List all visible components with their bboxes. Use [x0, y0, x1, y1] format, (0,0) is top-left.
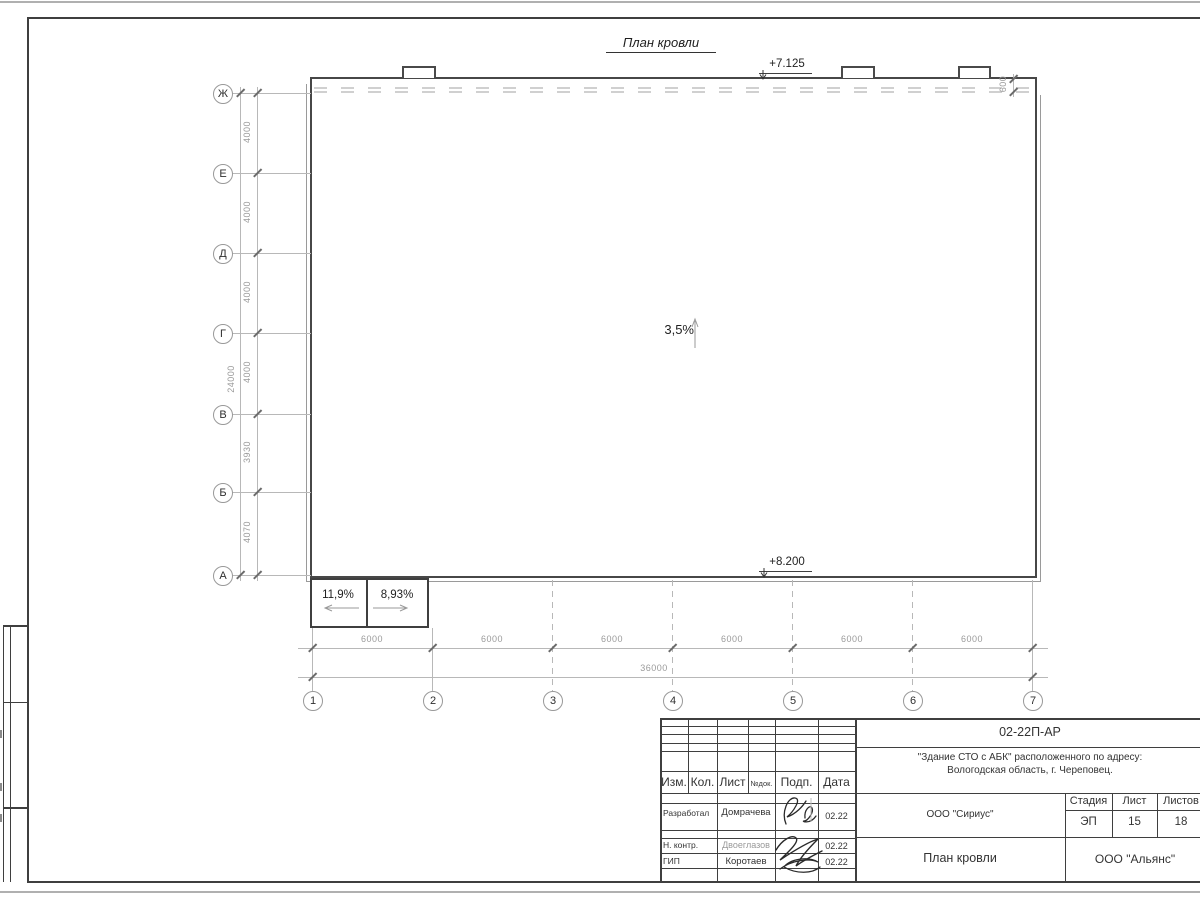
axis-bubble-col: 7: [1023, 691, 1043, 711]
titleblock-header-podp: Подп.: [775, 775, 818, 789]
dim-label: 6000: [702, 634, 762, 644]
binding-stamp-text-fragment: [0, 814, 2, 822]
axis-line-dashed: [912, 580, 913, 691]
parapet-dashed-line: [314, 87, 1034, 89]
frame-top: [27, 17, 1200, 19]
frame-left: [27, 17, 29, 883]
titleblock-line: [660, 718, 1200, 720]
axis-line: [231, 253, 311, 254]
titleblock-total-value: 18: [1157, 816, 1200, 828]
axis-bubble-row: Е: [213, 164, 233, 184]
binding-stamp-line: [3, 625, 4, 882]
axis-bubble-row: В: [213, 405, 233, 425]
axis-line: [231, 492, 311, 493]
titleblock-sheet-label: Лист: [1112, 795, 1157, 807]
roof-vent-shaft: [958, 66, 991, 78]
titleblock-line: [660, 743, 855, 744]
axis-line: [432, 628, 433, 691]
dimension-line-left-total: [240, 87, 241, 581]
axis-line: [231, 575, 311, 576]
ramp-slope-left: 11,9%: [312, 589, 364, 601]
ramp-box: [310, 578, 429, 628]
parapet-outer-line: [1040, 95, 1041, 581]
titleblock-project-line1: "Здание СТО с АБК" расположенного по адр…: [860, 752, 1200, 763]
titleblock-line: [1065, 810, 1200, 811]
titleblock-total-label: Листов: [1157, 795, 1200, 807]
dim-total-label: 24000: [226, 357, 236, 401]
frame-bottom: [27, 881, 1200, 883]
dim-label: 6000: [942, 634, 1002, 644]
titleblock-line: [660, 771, 855, 772]
drawing-title: План кровли: [606, 35, 716, 53]
signature-scribble: [772, 832, 826, 880]
axis-bubble-col: 2: [423, 691, 443, 711]
titleblock-line: [660, 830, 855, 831]
titleblock-name: Коротаев: [717, 856, 775, 867]
dim-label: 4000: [242, 190, 252, 234]
titleblock-name: Двоеглазов: [717, 840, 775, 850]
elevation-arrow-icon: [757, 70, 769, 80]
dim-label: 6000: [462, 634, 522, 644]
axis-bubble-col: 4: [663, 691, 683, 711]
titleblock-name: Домрачева: [717, 807, 775, 818]
axis-line: [231, 414, 311, 415]
axis-line-dashed: [672, 580, 673, 691]
roof-vent-shaft: [402, 66, 436, 78]
titleblock-line: [660, 718, 662, 883]
titleblock-date: 02.22: [818, 811, 855, 821]
slope-label: 3,5%: [648, 322, 694, 337]
binding-stamp-line: [3, 702, 27, 703]
titleblock-line: [660, 734, 855, 735]
parapet-dashed-line: [314, 91, 1034, 93]
dim-label: 4000: [242, 110, 252, 154]
ramp-arrow-left-icon: [322, 604, 360, 612]
axis-bubble-row: Д: [213, 244, 233, 264]
titleblock-stage-label: Стадия: [1065, 795, 1112, 807]
dim-label: 4000: [242, 270, 252, 314]
signature-scribble: [778, 792, 820, 832]
titleblock-doc-number: 02-22П-АР: [855, 725, 1200, 739]
ramp-arrow-right-icon: [372, 604, 410, 612]
axis-bubble-col: 6: [903, 691, 923, 711]
dim-label: 4070: [242, 510, 252, 554]
axis-bubble-col: 5: [783, 691, 803, 711]
dimension-line-bottom-total: [298, 677, 1048, 678]
dim-total-label: 36000: [624, 663, 684, 673]
sheet-top-edge: [0, 1, 1200, 3]
titleblock-org2: ООО "Альянс": [1065, 852, 1200, 866]
binding-stamp-text-fragment: [0, 783, 2, 791]
elevation-top-label: +7.125: [762, 58, 812, 70]
axis-bubble-col: 1: [303, 691, 323, 711]
axis-line: [231, 333, 311, 334]
titleblock-role: ГИП: [663, 856, 717, 866]
titleblock-stage-value: ЭП: [1065, 816, 1112, 828]
titleblock-line: [660, 751, 855, 752]
binding-stamp-line: [3, 625, 27, 627]
slope-arrow-icon: [690, 317, 700, 349]
dim-label: 6000: [342, 634, 402, 644]
axis-bubble-row: Б: [213, 483, 233, 503]
titleblock-org1: ООО "Сириус": [855, 809, 1065, 820]
binding-stamp-line: [3, 807, 27, 809]
titleblock-header-ndok: №док.: [748, 779, 775, 788]
dim-label: 6000: [582, 634, 642, 644]
titleblock-header-kol: Кол.: [688, 775, 717, 789]
axis-bubble-row: Г: [213, 324, 233, 344]
titleblock-project-line2: Вологодская область, г. Череповец.: [860, 765, 1200, 776]
titleblock-sheet-value: 15: [1112, 816, 1157, 828]
ramp-slope-right: 8,93%: [368, 589, 426, 601]
titleblock-sheet-title: План кровли: [855, 851, 1065, 865]
titleblock-header-izm: Изм.: [660, 775, 688, 789]
axis-bubble-col: 3: [543, 691, 563, 711]
dim-label: 4000: [242, 350, 252, 394]
axis-line: [312, 628, 313, 691]
axis-bubble-row: А: [213, 566, 233, 586]
titleblock-line: [855, 747, 1200, 748]
axis-line: [231, 93, 311, 94]
titleblock-line: [855, 837, 1200, 838]
axis-bubble-row: Ж: [213, 84, 233, 104]
axis-line-dashed: [552, 580, 553, 691]
titleblock-header-data: Дата: [818, 775, 855, 789]
parapet-dim-label: 600: [998, 62, 1008, 106]
binding-stamp-line: [10, 625, 11, 882]
titleblock-role: Разработал: [663, 808, 717, 818]
axis-line-dashed: [792, 580, 793, 691]
elevation-arrow-icon: [758, 568, 770, 578]
sheet-bottom-edge: [0, 891, 1200, 893]
titleblock-header-list: Лист: [717, 775, 748, 789]
dim-label: 3930: [242, 430, 252, 474]
titleblock-role: Н. контр.: [663, 840, 717, 850]
ramp-box-divider: [366, 578, 368, 628]
binding-stamp-text-fragment: [0, 730, 2, 738]
titleblock-line: [660, 803, 855, 804]
axis-line: [231, 173, 311, 174]
roof-vent-shaft: [841, 66, 875, 78]
titleblock-line: [660, 726, 855, 727]
dim-label: 6000: [822, 634, 882, 644]
drawing-sheet: План кровли 3,5% +7.125 +8.200 600 11,9%…: [0, 0, 1200, 900]
elevation-bottom-label: +8.200: [762, 556, 812, 568]
titleblock-line: [660, 793, 1200, 794]
